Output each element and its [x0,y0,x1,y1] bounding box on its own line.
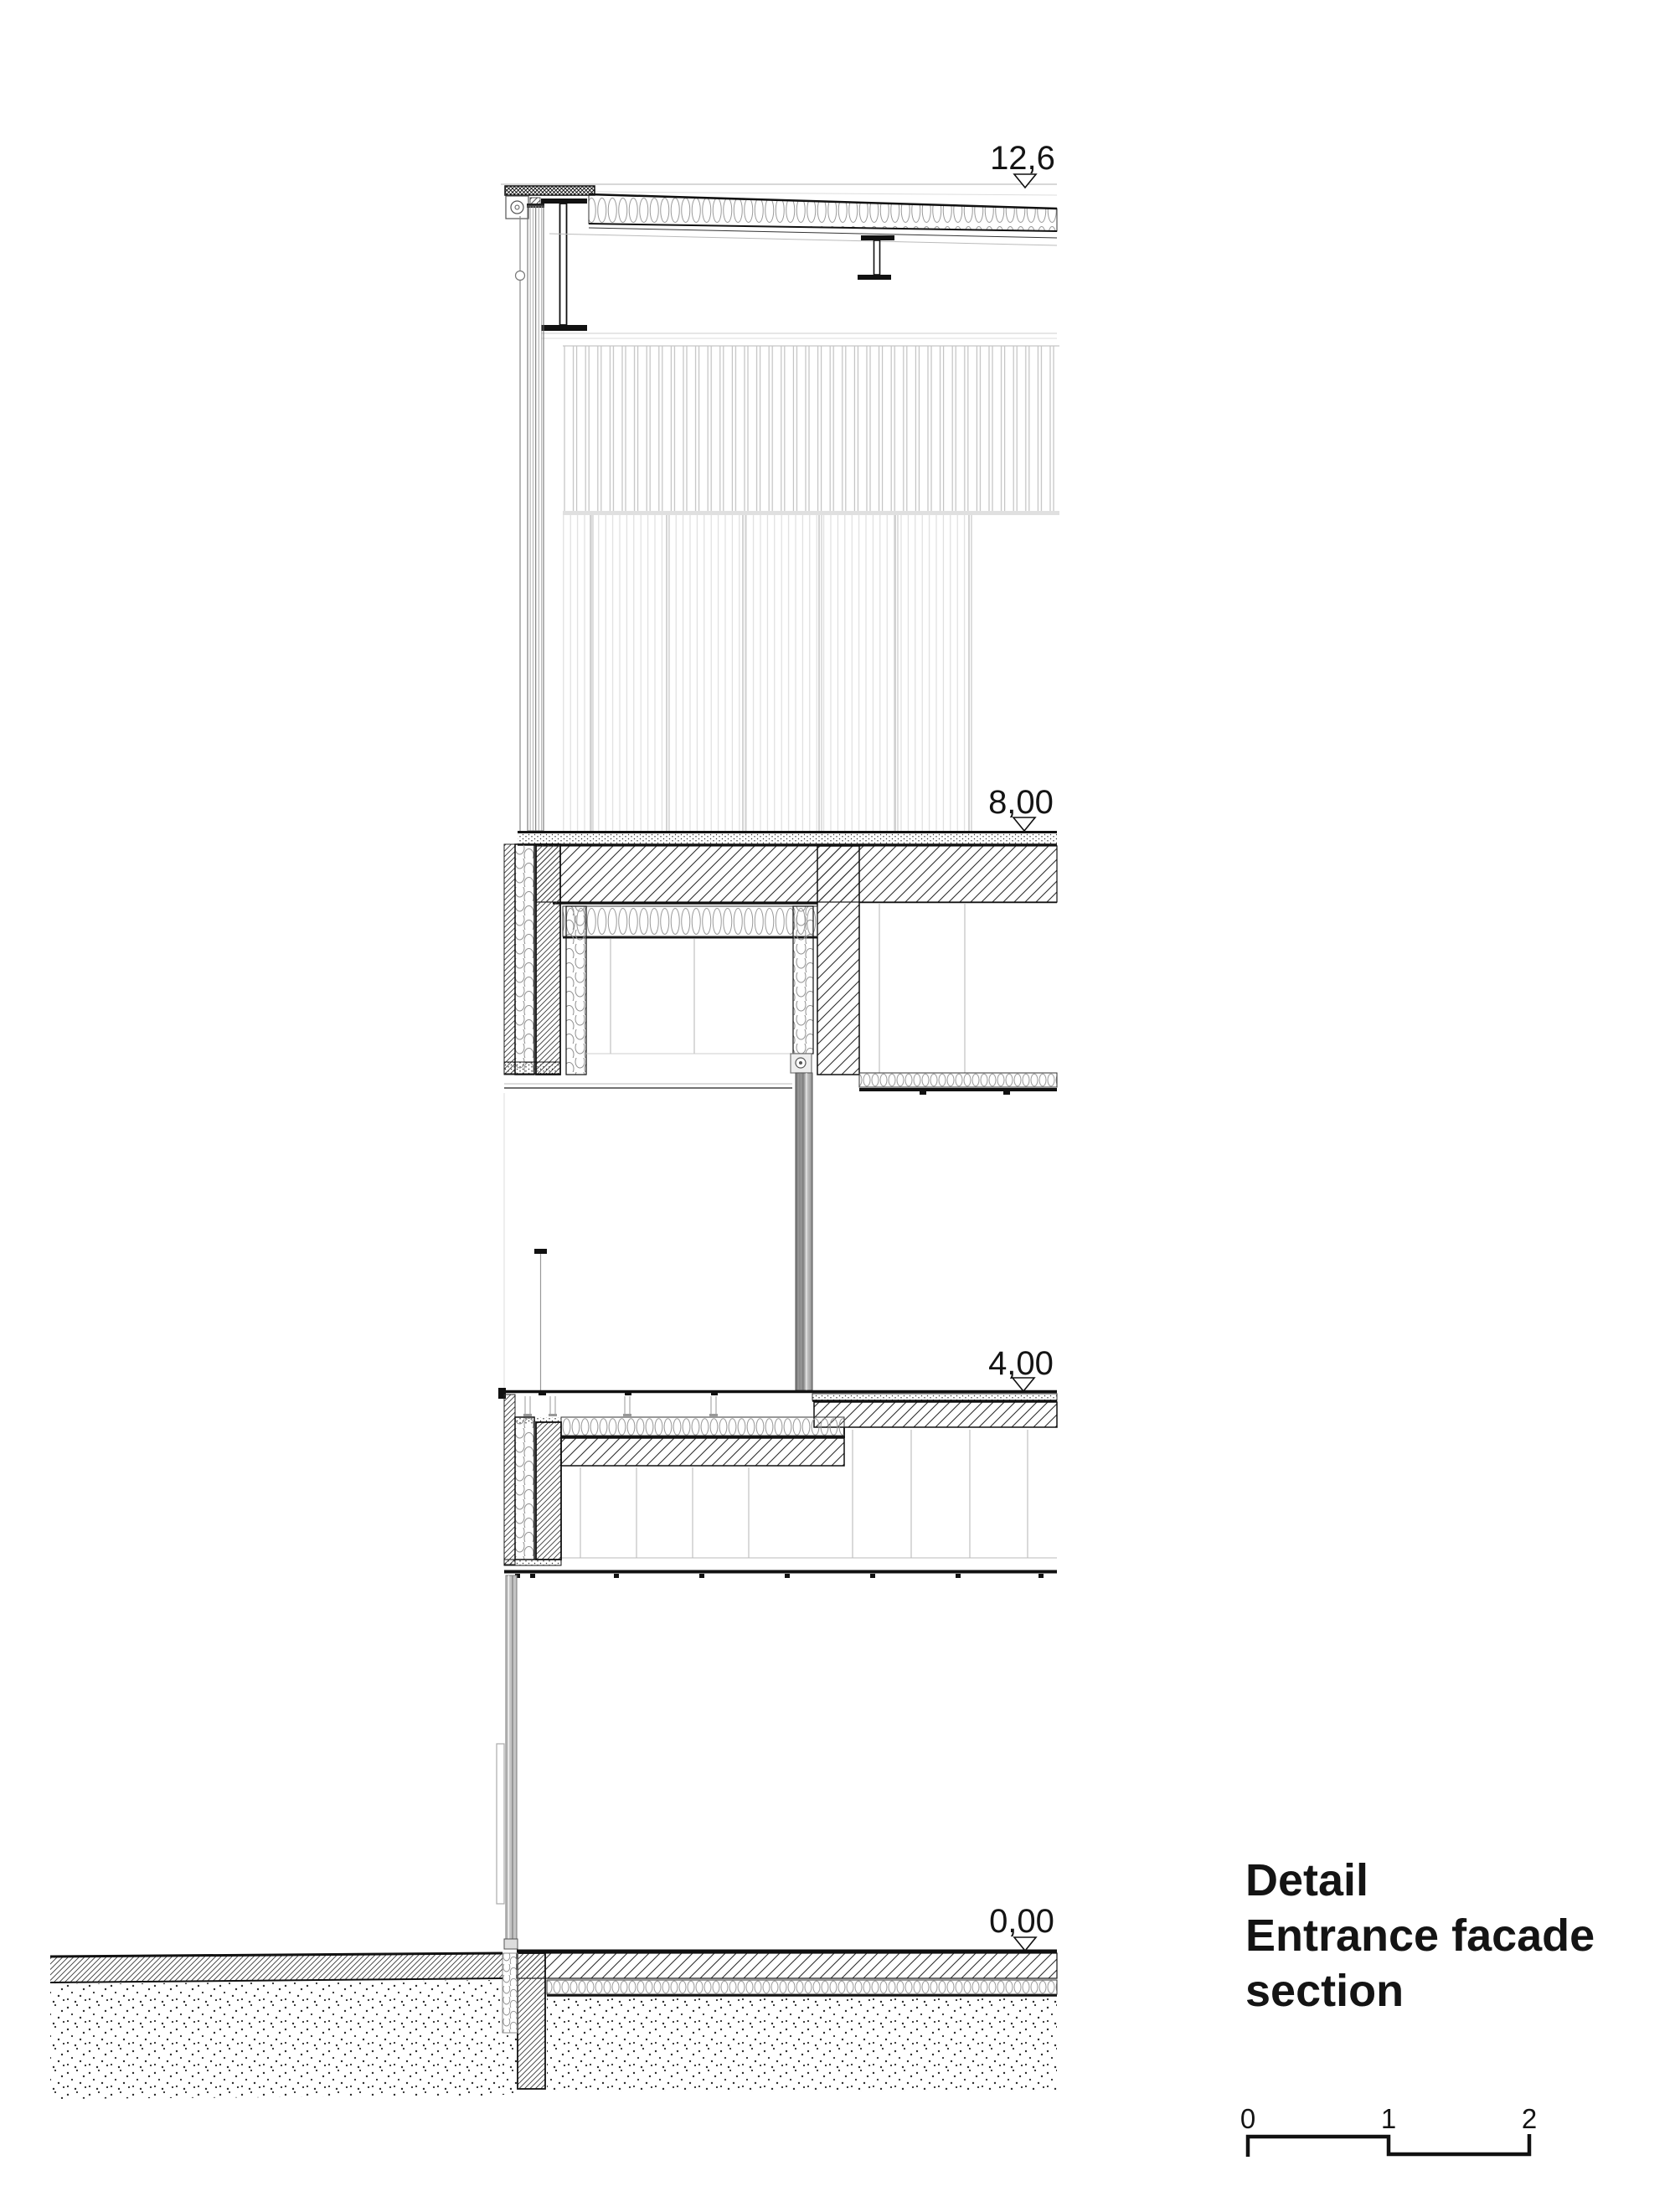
wall-4-structure [536,1422,561,1560]
parapet-cap [505,186,595,195]
wall-column-8 [504,844,560,1075]
floor-4-slab-left [561,1438,844,1466]
floor-8-downstand-beam [817,846,859,1075]
scale-bar: 0 1 2 [1240,2103,1537,2157]
scale-tick-1: 1 [1381,2103,1396,2134]
ground-assembly [50,1939,1057,2099]
glazing-shoe [504,1939,518,1949]
corrugated-cladding [563,346,1059,831]
title-line-2: Entrance facade [1245,1910,1595,1961]
level-marker-roof: 12,6 [990,140,1055,188]
wall-8-structure [536,844,560,1075]
scale-tick-2: 2 [1522,2103,1537,2134]
wall-8-insulation [515,844,534,1075]
title-line-1: Detail [1245,1855,1368,1905]
sill-insulation-strip [859,1073,1057,1087]
level-label-4: 4,00 [988,1345,1054,1382]
level-label-8: 8,00 [988,784,1054,821]
level-marker-8: 8,00 [988,784,1054,831]
roof-faint-line-2 [589,192,1057,195]
ground-hatch [50,1980,1057,2099]
level-label-0: 0,00 [989,1903,1054,1940]
floor-4-screed-right [812,1394,1057,1400]
foundation-beam [518,1953,545,2089]
wall-8-bottom-band [504,1062,560,1074]
wall-4-insulation [515,1417,534,1560]
floor-8-window-band [859,903,1057,1096]
cladding-band-upper [563,346,1059,511]
level-triangle-4 [1013,1378,1034,1391]
purlin-i-beam [858,235,894,280]
recess-insulation [563,906,817,936]
level-marker-0: 0,00 [989,1903,1054,1951]
floor-8-recess-window [553,904,817,1075]
floor-4-insulation [561,1417,844,1436]
floor-8-assembly [504,833,1057,1391]
blind-box [506,196,528,219]
exterior-pavement [50,1953,502,1983]
wall-8-outer-layer [504,844,515,1075]
wall-4-bottom-band [504,1560,561,1565]
floor-4-slab-right [814,1402,1057,1427]
section-drawing: 12,6 8,00 4,00 0,00 Detail Entrance faca… [0,0,1675,2212]
wall-4-outer-layer [504,1395,515,1565]
recess-jamb-right [793,906,813,1054]
cladding-band-lower [563,515,971,831]
recess-jamb-left [566,906,586,1075]
scale-bar-line [1248,2134,1529,2157]
floor-8-concrete-slab [536,846,1057,902]
floor-4-assembly [497,1388,1057,1949]
level-label-roof: 12,6 [990,140,1055,177]
entrance-glazing [497,1575,517,1949]
soffit-clips [515,1574,1044,1578]
raised-floor-pedestals [523,1396,718,1416]
perimeter-insulation [502,1953,518,2033]
scale-tick-0: 0 [1240,2103,1255,2134]
cladding-band-divider [563,511,1059,515]
level-triangle-8 [1013,817,1035,831]
underslab-insulation [547,1980,1057,1994]
hanging-rod [534,1249,547,1390]
steel-column-i-beam [541,199,587,331]
level-triangle-roof [1014,174,1036,188]
sheet: 12,6 8,00 4,00 0,00 Detail Entrance faca… [0,0,1675,2212]
facade-fixing-circle [516,271,525,281]
level-marker-4: 4,00 [988,1345,1054,1391]
curtain-wall-mullion [791,1054,812,1390]
floor-8-screed [518,833,1057,843]
level-triangle-0 [1014,1937,1036,1951]
ground-slab [517,1953,1057,1978]
roof-deck-faint-line [549,234,1057,245]
door-leaf-outline [497,1744,504,1904]
title-line-3: section [1245,1966,1404,2016]
upper-glazing-mullion [516,204,545,831]
title-block: Detail Entrance facade section [1245,1855,1595,2016]
roof-package [549,194,1057,245]
